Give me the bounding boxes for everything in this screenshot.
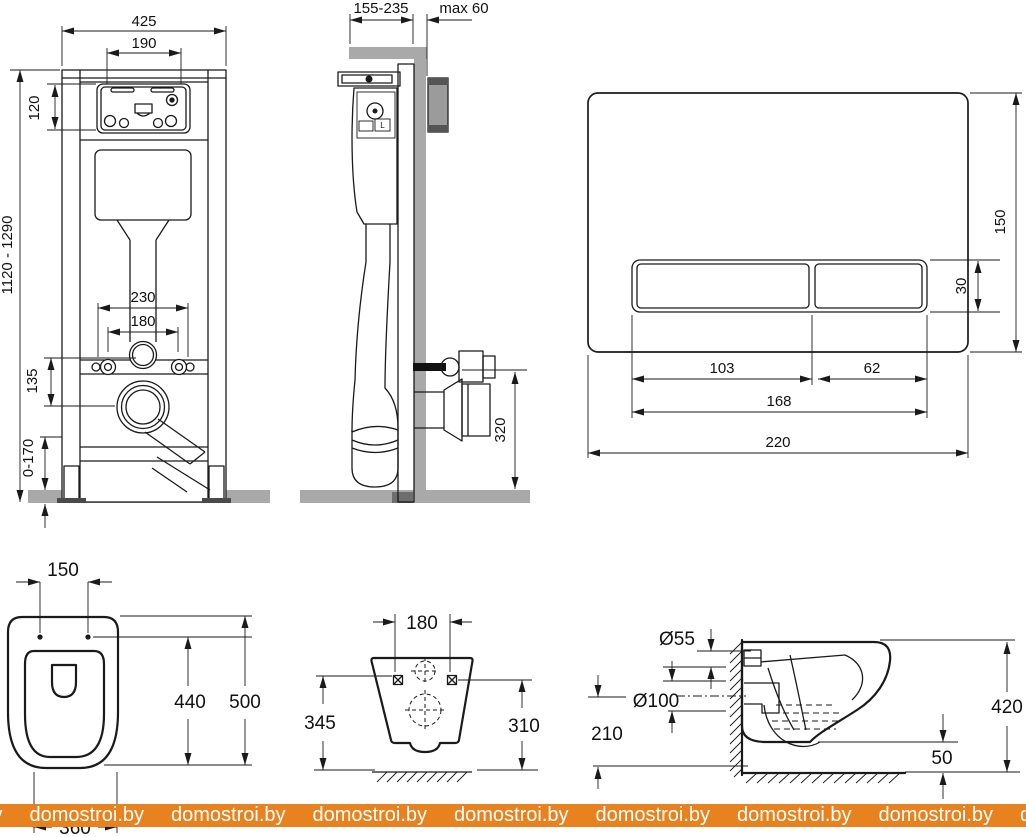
dim-label-buttons-total: 168 xyxy=(766,393,791,410)
view-bowl-top: 150 440 500 360 xyxy=(8,560,261,837)
watermark-track: domostroi.bydomostroi.bydomostroi.bydomo… xyxy=(0,804,1026,827)
dim-label-depth-to-holes: 440 xyxy=(174,692,206,713)
dim-label-leg-adjust: 0-170 xyxy=(20,439,37,477)
watermark-text: domostroi.by xyxy=(313,804,428,827)
dim-hinge-spacing: 150 xyxy=(16,560,112,633)
dim-label-outlet-height: 320 xyxy=(492,417,509,442)
dim-label-hinge-spacing: 150 xyxy=(47,560,79,581)
frame-structure xyxy=(62,70,226,502)
wall-hatch-side xyxy=(730,640,742,777)
dim-depth-to-holes: 440 xyxy=(93,637,252,765)
dim-label-outlet-center-height: 210 xyxy=(591,724,623,745)
dim-outlet-height: 320 xyxy=(462,370,527,489)
watermark-text: domostroi.by xyxy=(30,804,145,827)
dim-label-depth-range: 155-235 xyxy=(353,0,408,17)
dim-label-panel-height: 120 xyxy=(26,95,43,120)
view-bowl-back: 180 345 310 xyxy=(304,613,540,782)
dim-label-total-depth: 500 xyxy=(229,692,261,713)
bowl-inner-details xyxy=(744,650,863,746)
frame-upright-side xyxy=(398,64,414,502)
cistern-side: L xyxy=(352,88,397,224)
drawing-svg: 425 190 120 1120 - 1290 230 180 xyxy=(0,0,1026,837)
dim-label-height-left: 345 xyxy=(304,713,336,734)
wall-section xyxy=(414,59,426,503)
wall-top-section xyxy=(349,47,427,59)
dim-label-opening-width: 190 xyxy=(131,35,156,52)
watermark-text: domostroi.by xyxy=(596,804,711,827)
watermark-text: domostroi.by xyxy=(879,804,994,827)
dim-label-button-height: 30 xyxy=(953,278,970,295)
flush-plate-body xyxy=(588,93,968,352)
drain-connection-bell xyxy=(444,379,490,441)
dim-label-outlet-diameter: Ø100 xyxy=(633,691,679,712)
dim-label-frame-width: 425 xyxy=(131,13,156,30)
dim-buttons-total: 168 xyxy=(632,385,927,418)
dim-label-wall-max: max 60 xyxy=(439,0,488,17)
water-inlet-port xyxy=(130,342,157,369)
dim-label-bowl-height: 420 xyxy=(991,697,1023,718)
dim-depth-range: 155-235 xyxy=(350,0,413,44)
floor-hatch-back xyxy=(372,772,472,782)
watermark-text: domostroi.by xyxy=(737,804,852,827)
dim-label-plate-width: 220 xyxy=(765,434,790,451)
bowl-outline-back xyxy=(371,658,472,752)
dim-fixing-spacing-back: 180 xyxy=(373,613,472,672)
dim-wall-max: max 60 xyxy=(427,0,489,76)
inlet-hole-back xyxy=(411,657,439,685)
dim-inlet-diameter: Ø55 xyxy=(659,629,751,689)
watermark-text: domostroi.by xyxy=(454,804,569,827)
hinge-hole-right xyxy=(85,634,90,639)
watermark-text: domostroi.by xyxy=(0,804,3,827)
access-panel xyxy=(97,84,190,133)
floor-hatch-side xyxy=(742,773,905,783)
view-frame-front: 425 190 120 1120 - 1290 230 180 xyxy=(0,13,270,528)
dim-label-fixing-spacing-back: 180 xyxy=(406,613,438,634)
valve-mark-label: L xyxy=(380,121,385,130)
dim-label-button-large: 103 xyxy=(709,360,734,377)
dim-height-right: 310 xyxy=(458,680,540,770)
view-flush-plate: 150 30 103 62 168 220 xyxy=(588,93,1022,458)
watermark-text: domostroi.by xyxy=(1020,804,1026,827)
view-frame-side: L 155-235 max 60 xyxy=(300,0,530,503)
flush-plate-rough-in-box xyxy=(428,78,448,132)
view-bowl-side: Ø55 Ø100 210 420 50 xyxy=(588,629,1023,799)
hinge-hole-left xyxy=(37,634,42,639)
dim-label-frame-height-range: 1120 - 1290 xyxy=(0,216,16,295)
seat-outline xyxy=(25,651,104,757)
dim-label-fixing-outer: 230 xyxy=(130,289,155,306)
dim-label-bottom-clearance: 50 xyxy=(931,748,952,769)
dim-label-button-small: 62 xyxy=(864,360,881,377)
technical-drawing-canvas: 425 190 120 1120 - 1290 230 180 xyxy=(0,0,1026,837)
flush-opening xyxy=(52,665,76,697)
dim-bottom-clearance: 50 xyxy=(818,714,958,799)
wall-bracket xyxy=(338,72,400,86)
watermark-text: domostroi.by xyxy=(171,804,286,827)
outlet-hole-back xyxy=(405,690,445,730)
water-level-dashes xyxy=(772,705,840,729)
watermark-band: domostroi.bydomostroi.bydomostroi.bydomo… xyxy=(0,804,1026,827)
dim-label-plate-height: 150 xyxy=(992,209,1009,234)
dim-label-inlet-to-outlet: 135 xyxy=(24,368,41,393)
dim-label-fixing-inner: 180 xyxy=(130,313,155,330)
dim-label-inlet-diameter: Ø55 xyxy=(659,629,695,650)
dim-outlet-diameter: Ø100 xyxy=(633,661,746,733)
dim-leg-adjust: 0-170 xyxy=(20,437,62,528)
dim-label-height-right: 310 xyxy=(508,716,540,737)
dim-plate-height: 150 xyxy=(970,93,1022,352)
dim-total-depth: 500 xyxy=(120,616,261,765)
